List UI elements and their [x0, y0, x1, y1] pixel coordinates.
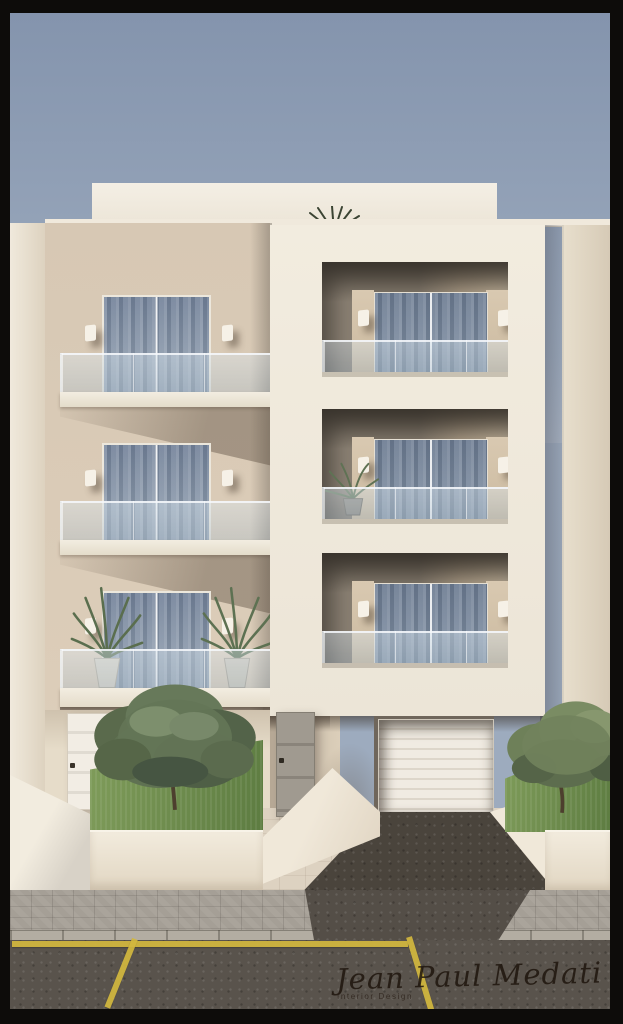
loggia-top-balustrade: [322, 340, 508, 372]
glass-balustrade-top: [60, 353, 279, 394]
loggia-middle-lip-shadow: [322, 519, 508, 524]
designer-signature: Jean Paul Medati Interior Design: [319, 945, 604, 1005]
planter-right-wall: [545, 830, 610, 892]
olive-bush-left: [80, 668, 270, 813]
loggia-bottom: [322, 553, 508, 663]
loggia-middle-sconce-right: [498, 456, 508, 473]
loggia-bottom-sconce-right: [498, 600, 508, 617]
sconce-top-left: [85, 324, 96, 341]
loggia-bottom-lip-shadow: [322, 663, 508, 668]
door-handle-center: [279, 758, 284, 763]
sconce-top-right: [222, 324, 233, 341]
loggia-bottom-balustrade: [322, 631, 508, 663]
driveway-apron: [305, 890, 530, 940]
glass-balustrade-middle: [60, 501, 279, 542]
framed-render: Jean Paul Medati Interior Design: [0, 0, 623, 1024]
loggia-middle-balustrade: [322, 487, 508, 519]
signature-caption: Interior Design: [337, 992, 413, 1001]
loggia-top-lip-shadow: [322, 372, 508, 377]
garage-door: [378, 719, 494, 815]
loggia-top-sconce-right: [498, 309, 508, 326]
render-photo: Jean Paul Medati Interior Design: [10, 13, 610, 1009]
loggia-middle: [322, 409, 508, 519]
loggia-top-sconce-left: [358, 309, 369, 326]
planter-left-wall: [90, 830, 263, 890]
sconce-middle-right: [222, 469, 233, 486]
balcony-slab-top: [60, 392, 277, 407]
loggia-bottom-sconce-left: [358, 600, 369, 617]
door-handle-left: [70, 763, 75, 768]
sconce-middle-left: [85, 469, 96, 486]
olive-tree-right: [497, 675, 610, 815]
loggia-top: [322, 262, 508, 372]
signature-name: Jean Paul Medati: [335, 956, 602, 997]
balcony-slab-middle: [60, 540, 277, 555]
